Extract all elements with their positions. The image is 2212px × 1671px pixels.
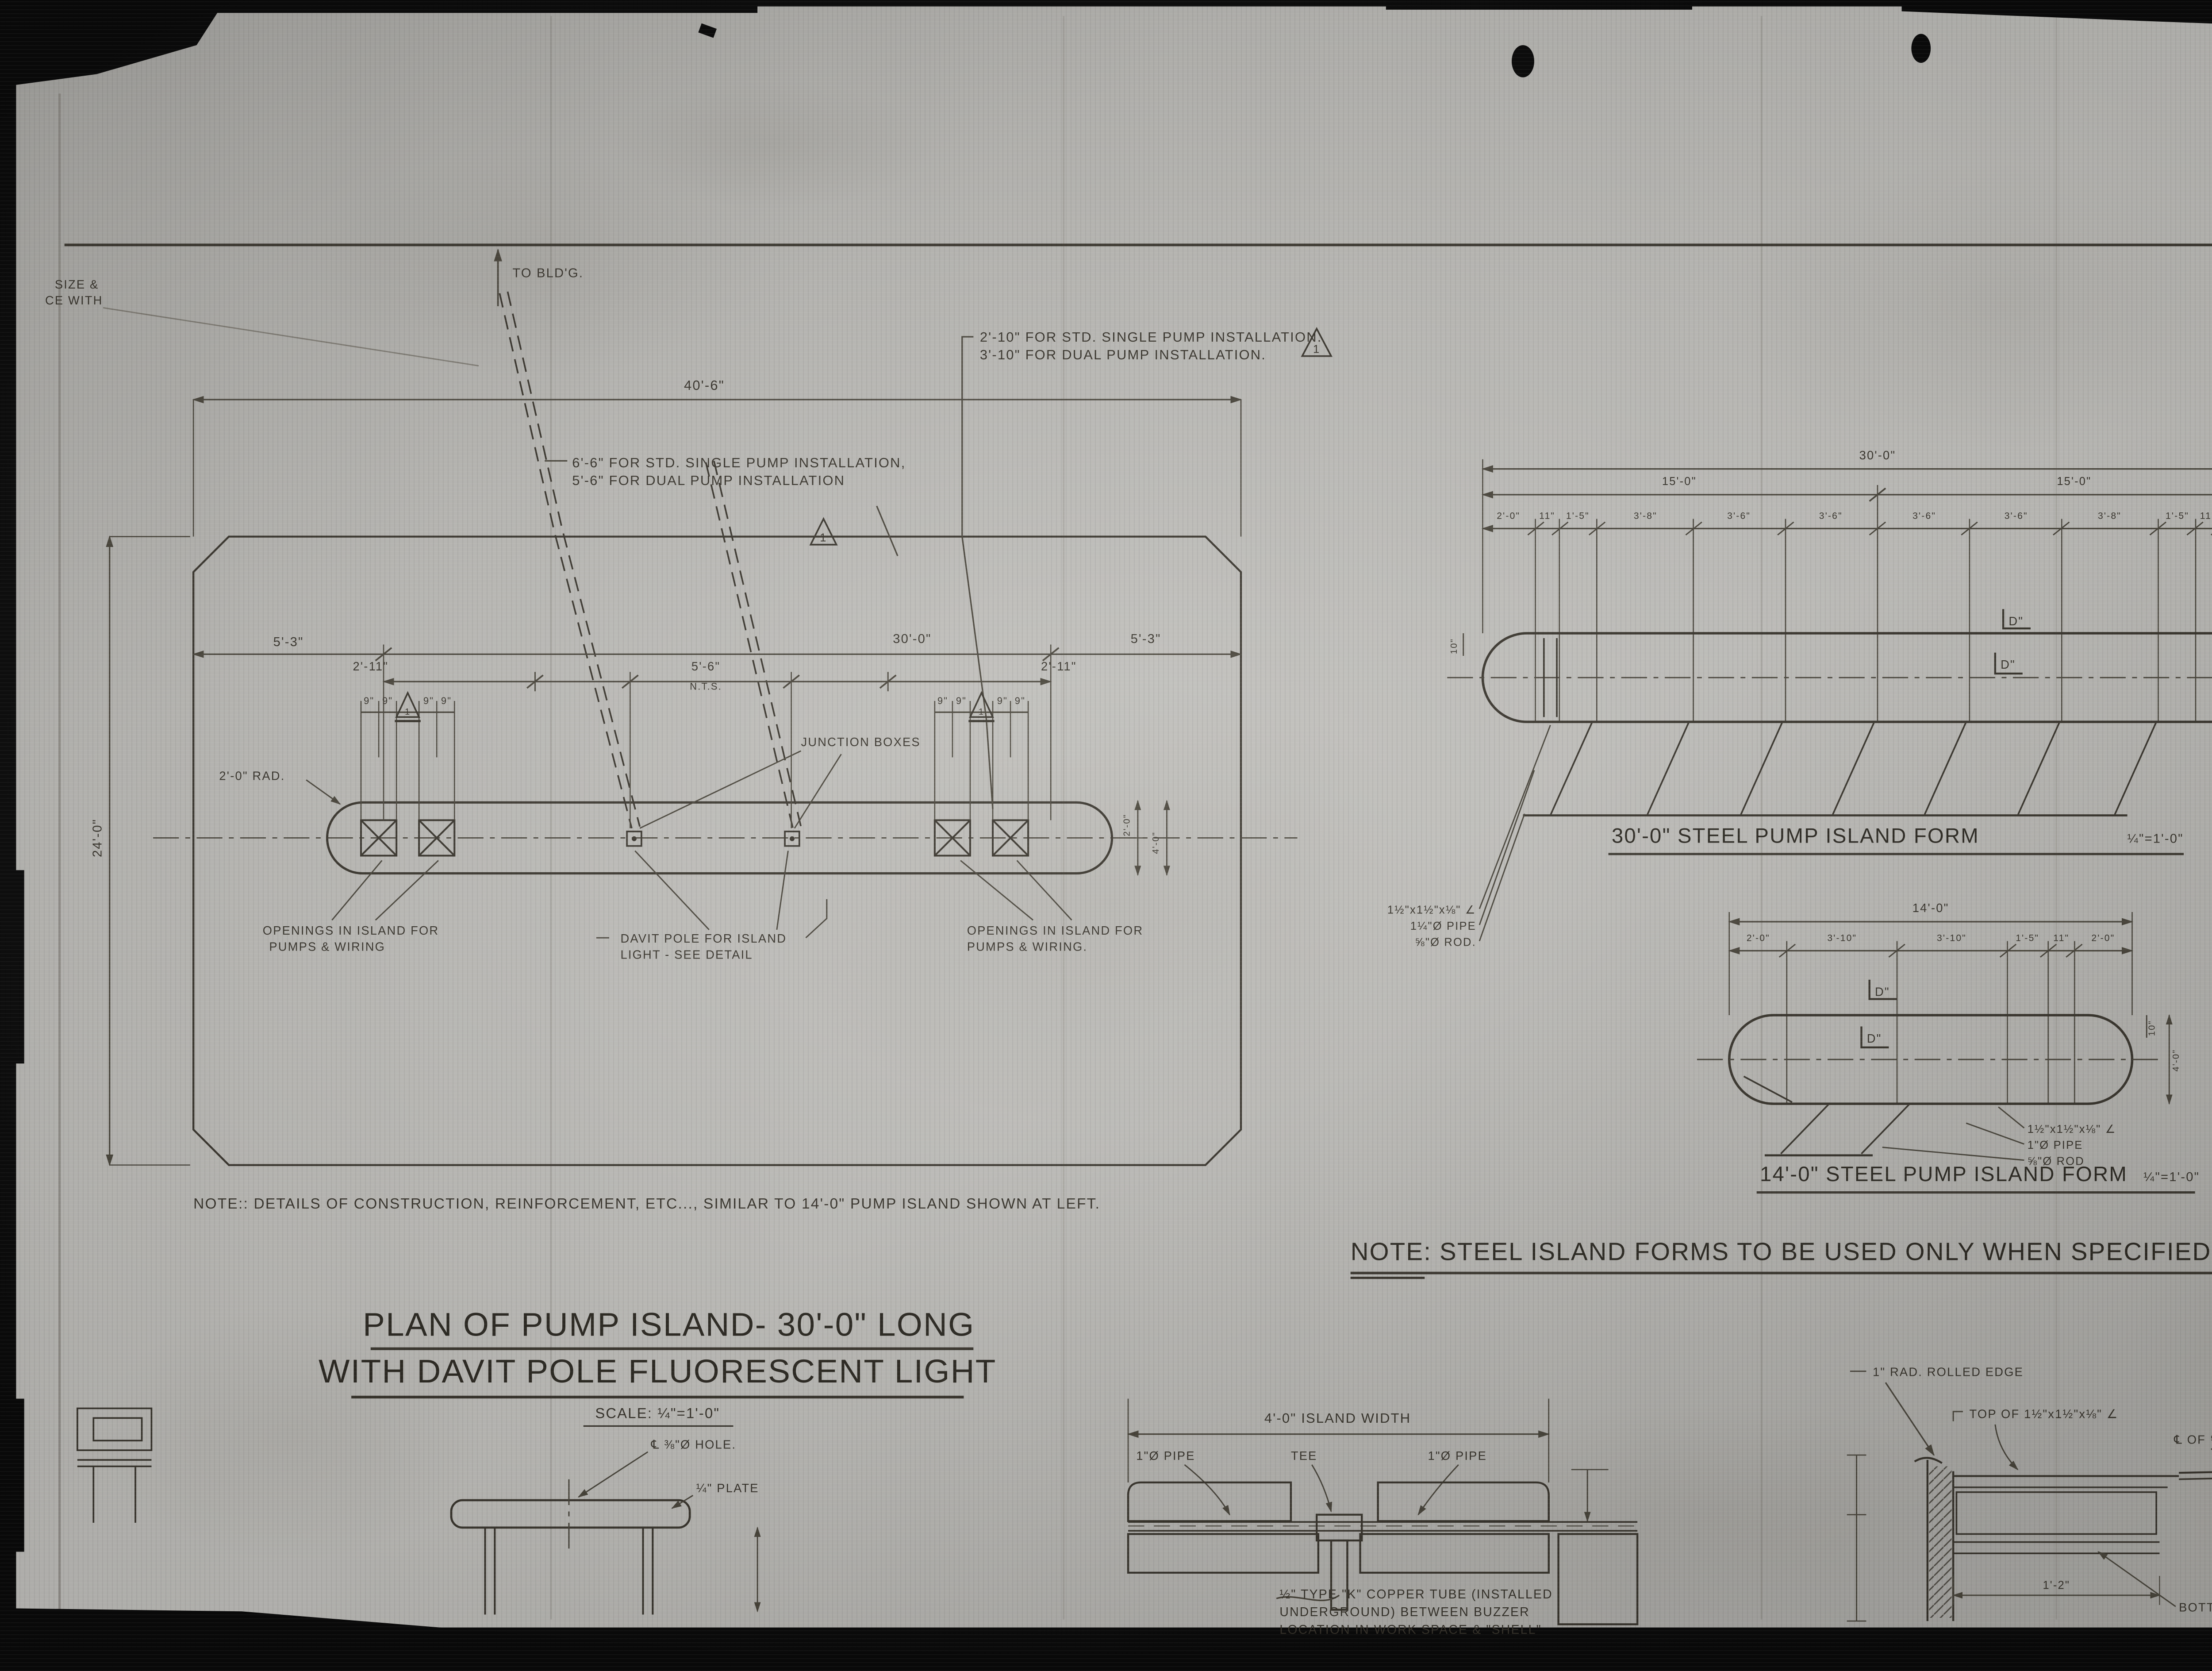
dim-island-length: 30'-0" — [893, 632, 931, 646]
pipe-right-label: 1"Ø PIPE — [1428, 1449, 1487, 1463]
annotation-left-line1: 6'-6" FOR STD. SINGLE PUMP INSTALLATION, — [572, 455, 906, 470]
dim-9: 9" — [441, 695, 452, 706]
dim-pump-left: 2'-11" — [353, 659, 389, 673]
form30-angle-label: 1½"x1½"x⅛" ∠ — [1387, 904, 1476, 916]
svg-text:1'-5": 1'-5" — [2166, 511, 2189, 521]
dim-depth-text: 24'-0" — [90, 819, 104, 857]
form14-dim-total: 14'-0" — [1912, 901, 1949, 915]
plan-title-line1: PLAN OF PUMP ISLAND- 30'-0" LONG — [363, 1306, 975, 1343]
dim-half-width: 2'-0" — [1122, 814, 1132, 836]
revision-triangle-number: 1 — [1313, 343, 1320, 355]
dim-9: 9" — [937, 695, 948, 706]
dim-overall-text: 40'-6" — [684, 377, 725, 393]
dim-nts: N.T.S. — [690, 681, 722, 692]
form30-dim-10-left: 10" — [1449, 638, 1459, 654]
plan-title-line2: WITH DAVIT POLE FLUORESCENT LIGHT — [319, 1352, 997, 1390]
form30-dim-half-right: 15'-0" — [2057, 475, 2091, 488]
dim-9: 9" — [423, 695, 434, 706]
form14-dim-height: 4'-0" — [2171, 1049, 2181, 1072]
copper-note-line3: LOCATION IN WORK SPACE & "SHELL" — [1279, 1623, 1541, 1637]
hole-label: ℄ ⅜"Ø HOLE. — [651, 1438, 736, 1452]
tee-label: TEE — [1291, 1449, 1317, 1463]
revision-triangle-number: 1 — [405, 707, 411, 717]
svg-text:3'-8": 3'-8" — [1634, 511, 1657, 521]
dim-9: 9" — [382, 695, 393, 706]
svg-text:3'-6": 3'-6" — [1727, 511, 1751, 521]
steel-forms-note: NOTE: STEEL ISLAND FORMS TO BE USED ONLY… — [1351, 1237, 2212, 1278]
dim-right-end: 5'-3" — [1131, 632, 1161, 646]
copper-note-line1: ½" TYPE "K" COPPER TUBE (INSTALLED — [1279, 1587, 1552, 1602]
section-mark-d: D" — [1875, 985, 1890, 998]
form30-rod-label: ⅝"Ø ROD. — [1415, 936, 1476, 948]
rolled-edge-label: 1" RAD. ROLLED EDGE — [1873, 1365, 2024, 1379]
form30-caption-scale: ¼"=1'-0" — [2128, 832, 2184, 846]
steel-note-text: NOTE: STEEL ISLAND FORMS TO BE USED ONLY… — [1351, 1237, 2212, 1265]
svg-text:11": 11" — [1539, 511, 1555, 521]
section-mark-d: D" — [1867, 1032, 1882, 1045]
dim-left-end: 5'-3" — [273, 635, 304, 649]
form14-pipe-label: 1"Ø PIPE — [2028, 1139, 2083, 1151]
plate-label: ¼" PLATE — [696, 1481, 759, 1495]
form14-caption: 14'-0" STEEL PUMP ISLAND FORM — [1760, 1163, 2128, 1186]
top-of-angle-label: TOP OF 1½"x1½"x⅛" ∠ — [1970, 1407, 2119, 1421]
dim-9: 9" — [364, 695, 374, 706]
dim-9: 9" — [1015, 695, 1025, 706]
openings-left-line1: OPENINGS IN ISLAND FOR — [263, 924, 439, 937]
scanned-drawing-page: { "film": { "page_label": "2 of/de" }, "… — [0, 0, 2212, 1671]
section-mark-d: D" — [2008, 614, 2024, 628]
revision-triangle-number: 1 — [820, 531, 827, 544]
form30-dim-half-left: 15'-0" — [1662, 475, 1697, 488]
svg-text:3'-6": 3'-6" — [1819, 511, 1843, 521]
davit-label-line1: DAVIT POLE FOR ISLAND — [621, 932, 787, 945]
to-building-label: TO BLD'G. — [512, 266, 584, 280]
annotation-top-line2: 3'-10" FOR DUAL PUMP INSTALLATION. — [980, 347, 1266, 362]
form30-pipe-label: 1¼"Ø PIPE — [1410, 920, 1476, 932]
dim-1-2: 1'-2" — [2043, 1579, 2070, 1591]
annotation-top-line1: 2'-10" FOR STD. SINGLE PUMP INSTALLATION… — [980, 329, 1322, 345]
svg-text:1'-5": 1'-5" — [1566, 511, 1590, 521]
island-width-dim: 4'-0" ISLAND WIDTH — [1264, 1410, 1411, 1426]
plan-title-scale: SCALE: ¼"=1'-0" — [595, 1405, 720, 1421]
copper-note-line2: UNDERGROUND) BETWEEN BUZZER — [1279, 1605, 1529, 1619]
dim-9: 9" — [956, 695, 967, 706]
svg-text:11": 11" — [2200, 511, 2212, 521]
dim-pump-right: 2'-11" — [1041, 659, 1077, 673]
svg-text:1'-5": 1'-5" — [2016, 933, 2039, 943]
svg-text:3'-10": 3'-10" — [1937, 933, 1966, 943]
svg-text:3'-8": 3'-8" — [2098, 511, 2121, 521]
form30-caption: 30'-0" STEEL PUMP ISLAND FORM — [1612, 824, 1979, 847]
openings-left-line2: PUMPS & WIRING — [269, 939, 385, 953]
svg-text:2'-0": 2'-0" — [1747, 933, 1770, 943]
drawing-canvas: TO BLD'G. SIZE & CE WITH 2'-10" FOR STD.… — [0, 0, 2212, 1671]
davit-label-line2: LIGHT - SEE DETAIL — [621, 948, 753, 962]
openings-right-line2: PUMPS & WIRING. — [967, 939, 1087, 953]
bottom-pipe-label: BOTTOM OF 1¼"Ø PIPE — [2179, 1600, 2212, 1614]
svg-text:2'-0": 2'-0" — [2091, 933, 2115, 943]
margin-cut-text-2: CE WITH — [45, 293, 103, 307]
form30-dim-total: 30'-0" — [1859, 448, 1896, 462]
dim-davit-spacing: 5'-6" — [691, 659, 720, 673]
svg-text:11": 11" — [2053, 933, 2069, 943]
svg-text:3'-6": 3'-6" — [1912, 511, 1936, 521]
revision-triangle-number: 1 — [979, 707, 984, 717]
plan-note: NOTE:: DETAILS OF CONSTRUCTION, REINFORC… — [193, 1196, 1100, 1212]
svg-text:2'-0": 2'-0" — [1497, 511, 1520, 521]
form14-angle-label: 1½"x1½"x⅛" ∠ — [2028, 1123, 2116, 1136]
openings-right-line1: OPENINGS IN ISLAND FOR — [967, 924, 1144, 937]
svg-text:3'-10": 3'-10" — [1827, 933, 1857, 943]
radius-label: 2'-0" RAD. — [219, 769, 285, 782]
svg-text:3'-6": 3'-6" — [2005, 511, 2028, 521]
margin-cut-text-1: SIZE & — [55, 277, 99, 291]
dim-full-width: 4'-0" — [1151, 832, 1161, 854]
pipe-left-label: 1"Ø PIPE — [1136, 1449, 1195, 1463]
junction-boxes-label: JUNCTION BOXES — [801, 735, 921, 749]
rod-centerline-label: ℄ OF ⅝"Ø ROD. — [2174, 1433, 2212, 1447]
form14-caption-scale: ¼"=1'-0" — [2143, 1170, 2200, 1184]
annotation-left-line2: 5'-6" FOR DUAL PUMP INSTALLATION — [572, 473, 845, 488]
dim-9: 9" — [997, 695, 1008, 706]
form14-dim-10: 10" — [2147, 1020, 2157, 1036]
section-mark-d: D" — [2001, 658, 2016, 671]
